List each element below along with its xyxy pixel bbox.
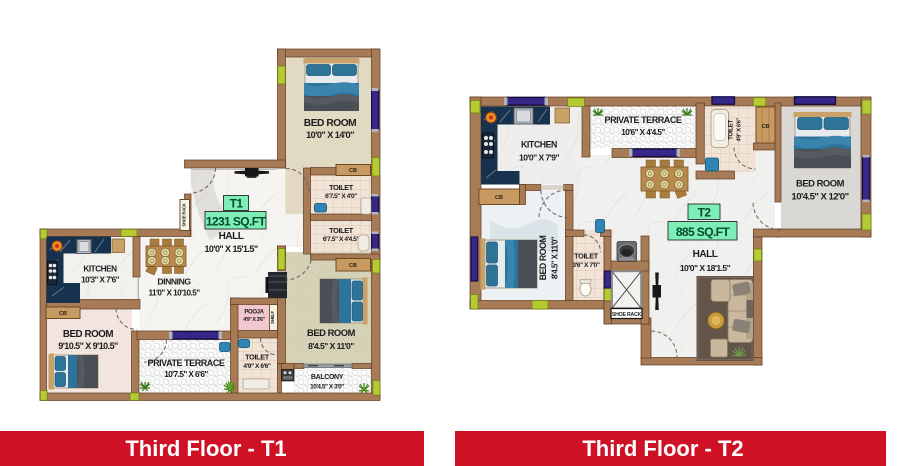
svg-text:BED ROOM: BED ROOM [63, 329, 114, 340]
svg-text:10'3" X 7'6": 10'3" X 7'6" [81, 276, 120, 285]
svg-text:10'4.5" X 12'0": 10'4.5" X 12'0" [791, 192, 848, 203]
svg-text:10'0" X 15'1.5": 10'0" X 15'1.5" [204, 244, 257, 254]
svg-text:Third Floor - T1: Third Floor - T1 [125, 436, 286, 461]
svg-text:KITCHEN: KITCHEN [521, 140, 557, 150]
svg-text:HALL: HALL [219, 231, 244, 242]
svg-text:10'7.5" X 6'6": 10'7.5" X 6'6" [164, 370, 208, 379]
svg-text:TOILET: TOILET [728, 120, 735, 140]
svg-text:4'9" X 6'6": 4'9" X 6'6" [243, 363, 270, 370]
svg-text:4'9" X 3'6": 4'9" X 3'6" [243, 317, 265, 323]
svg-text:8'4.5" X 11'0": 8'4.5" X 11'0" [308, 341, 354, 351]
svg-text:TOILET: TOILET [329, 226, 354, 235]
svg-text:TOILET: TOILET [245, 353, 270, 362]
svg-text:6'7.5" X 4'0": 6'7.5" X 4'0" [325, 193, 357, 200]
svg-text:HALL: HALL [693, 249, 718, 260]
svg-text:8'4.5" X 11'0": 8'4.5" X 11'0" [551, 236, 560, 279]
svg-text:SHELF: SHELF [270, 310, 275, 323]
svg-text:SHOE RACK: SHOE RACK [182, 203, 187, 227]
svg-text:6'7.5" X 4'4.5": 6'7.5" X 4'4.5" [323, 236, 360, 243]
svg-text:PRIVATE TERRACE: PRIVATE TERRACE [148, 358, 225, 368]
svg-text:TOILET: TOILET [574, 252, 599, 261]
svg-text:9'10.5" X 9'10.5": 9'10.5" X 9'10.5" [58, 341, 118, 351]
svg-text:CB: CB [349, 168, 357, 174]
svg-text:BED ROOM: BED ROOM [538, 235, 548, 280]
svg-text:10'0" X 7'9": 10'0" X 7'9" [519, 153, 560, 163]
svg-text:10'0" X 18'1.5": 10'0" X 18'1.5" [680, 263, 731, 273]
svg-text:BED ROOM: BED ROOM [304, 118, 356, 129]
svg-text:1231 SQ.FT: 1231 SQ.FT [206, 215, 267, 229]
svg-text:10'0" X 14'0": 10'0" X 14'0" [306, 130, 354, 140]
svg-text:Third Floor - T2: Third Floor - T2 [582, 436, 743, 461]
svg-text:POOJA: POOJA [244, 310, 264, 316]
svg-text:11'0" X 10'10.5": 11'0" X 10'10.5" [148, 289, 200, 298]
svg-text:T2: T2 [698, 206, 712, 220]
svg-text:T1: T1 [230, 197, 244, 211]
svg-text:BALCONY: BALCONY [311, 374, 344, 381]
svg-text:CB: CB [762, 124, 770, 130]
svg-text:885 SQ.FT: 885 SQ.FT [676, 225, 731, 239]
svg-text:KITCHEN: KITCHEN [83, 265, 117, 274]
svg-text:10'4.5" X 3'0": 10'4.5" X 3'0" [310, 384, 344, 391]
svg-text:SHOE RACK: SHOE RACK [612, 312, 642, 318]
svg-text:DINNING: DINNING [157, 277, 191, 287]
svg-text:4'9" X 6'6": 4'9" X 6'6" [737, 118, 743, 142]
svg-text:BED ROOM: BED ROOM [307, 327, 356, 338]
svg-text:BED ROOM: BED ROOM [796, 178, 845, 189]
svg-text:CB: CB [495, 195, 503, 201]
svg-text:CB: CB [349, 263, 357, 269]
svg-text:TOILET: TOILET [329, 183, 354, 192]
svg-text:CB: CB [59, 311, 67, 317]
svg-text:3'6" X 7'0": 3'6" X 7'0" [572, 262, 599, 269]
svg-text:10'6" X 4'4.5": 10'6" X 4'4.5" [621, 128, 665, 137]
svg-text:PRIVATE TERRACE: PRIVATE TERRACE [605, 115, 682, 125]
